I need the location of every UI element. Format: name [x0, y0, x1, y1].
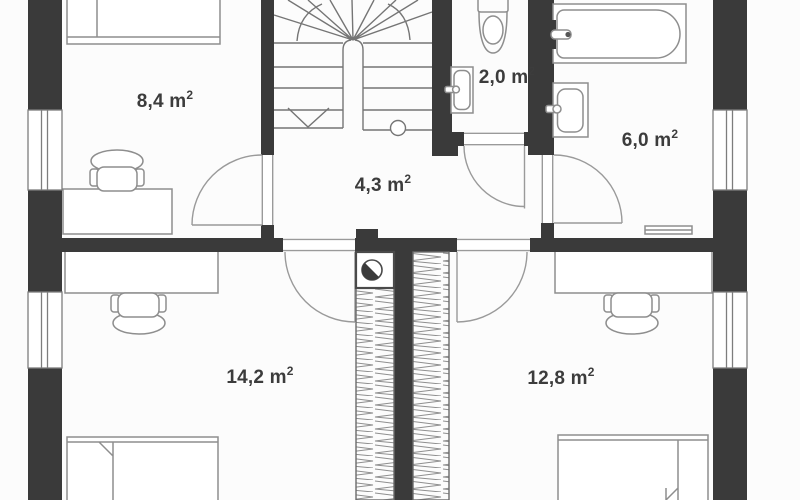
- window: [28, 292, 62, 368]
- hallway-wall: [530, 238, 713, 252]
- desk: [555, 250, 712, 293]
- exterior-wall-right: [713, 190, 747, 292]
- exterior-wall-right: [713, 368, 747, 500]
- wc-wall: [432, 0, 452, 132]
- room-area-label-bedroom-bottom-left: 14,2 m2: [226, 365, 293, 389]
- interior-wall: [261, 0, 274, 155]
- desk: [65, 250, 218, 293]
- room-area-label-wc: 2,0 m2: [479, 65, 535, 89]
- toilet: [478, 0, 508, 53]
- door: [283, 238, 355, 322]
- bed: [558, 435, 708, 500]
- chimney-flue-icon: [356, 252, 394, 288]
- room-area-label-bathroom: 6,0 m2: [622, 128, 678, 152]
- door: [464, 132, 525, 209]
- exterior-wall-left: [28, 0, 62, 110]
- stair-direction-arrow-icon: [288, 108, 329, 127]
- ventilation-shaft: [356, 288, 394, 500]
- exterior-wall-left: [28, 368, 62, 500]
- radiator: [645, 226, 692, 234]
- sink: [546, 83, 588, 137]
- bathroom-wall: [541, 223, 554, 252]
- bed: [67, 437, 218, 500]
- wc-wall: [432, 146, 458, 156]
- ventilation-shaft: [413, 252, 449, 500]
- window: [28, 110, 62, 190]
- bathtub: [549, 4, 686, 63]
- bed: [67, 0, 220, 44]
- door: [457, 238, 530, 322]
- desk: [63, 189, 172, 234]
- room-area-label-bedroom-top-left: 8,4 m2: [137, 89, 193, 113]
- staircase: [274, 0, 432, 136]
- door: [541, 155, 622, 223]
- hallway-wall: [30, 238, 283, 252]
- office-chair: [111, 293, 166, 334]
- stair-newel-post: [391, 121, 406, 136]
- door: [192, 155, 274, 225]
- room-area-label-bedroom-bottom-right: 12,8 m2: [527, 366, 594, 390]
- window: [713, 110, 747, 190]
- office-chair: [604, 293, 659, 334]
- hallway-wall: [355, 238, 457, 252]
- floor-plan-drawing: [0, 0, 800, 500]
- floor-plan: 8,4 m2 4,3 m2 2,0 m2 6,0 m2 14,2 m2 12,8…: [0, 0, 800, 500]
- office-chair: [90, 150, 144, 191]
- bedroom-divider-wall: [394, 252, 413, 500]
- hallway-wall: [356, 229, 378, 239]
- exterior-wall-right: [713, 0, 747, 110]
- window: [713, 292, 747, 368]
- room-area-label-hallway: 4,3 m2: [355, 173, 411, 197]
